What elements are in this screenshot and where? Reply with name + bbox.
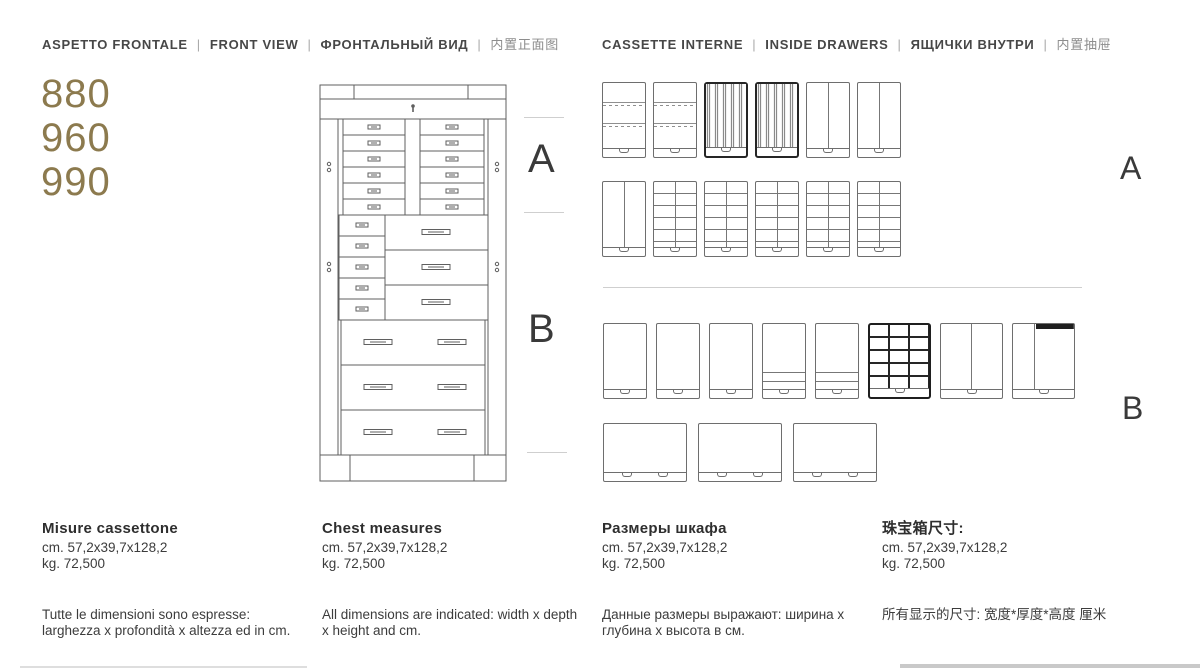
drawer-insert-watch-rolls xyxy=(755,82,799,158)
insert-well xyxy=(794,424,876,472)
insert-front-strip xyxy=(657,389,699,398)
insert-well xyxy=(705,182,747,247)
insert-well xyxy=(858,182,900,247)
section-a-bottom-rule xyxy=(524,212,564,213)
measure-kg: kg. 72,500 xyxy=(882,556,1154,572)
insert-handle-notch xyxy=(673,390,683,394)
inside-drawers-header-it: CASSETTE INTERNE xyxy=(602,37,743,52)
chest-top-lid xyxy=(320,85,506,119)
chest-outline xyxy=(320,85,506,481)
insert-handle-notch xyxy=(874,248,884,252)
drawer-insert-plain-wide xyxy=(698,423,782,482)
insert-row-b2 xyxy=(603,423,877,482)
insert-front-strip xyxy=(941,389,1002,398)
insert-handle-notch xyxy=(832,390,842,394)
insert-handle-notch xyxy=(717,473,727,477)
insert-well xyxy=(699,424,781,472)
keyhole-icon xyxy=(411,104,415,112)
insert-well xyxy=(1013,324,1074,389)
insert-handle-notch xyxy=(670,149,680,153)
insert-row-b1 xyxy=(603,323,1075,399)
section-b-bottom-rule xyxy=(527,452,567,453)
drawer-insert-plain-wide xyxy=(603,423,687,482)
section-a-label-left: A xyxy=(528,137,555,182)
section-b-lower-drawers xyxy=(341,320,485,455)
insert-row-a2 xyxy=(602,181,901,257)
section-b-label-right: B xyxy=(1122,390,1143,427)
measure-cm: cm. 57,2x39,7x128,2 xyxy=(602,540,874,556)
drawer-insert-divider-vertical xyxy=(806,82,850,158)
measure-note: Данные размеры выражают: ширина x глубин… xyxy=(602,607,892,639)
drawer-insert-divider-vertical xyxy=(602,181,646,257)
model-990: 990 xyxy=(41,160,111,204)
measure-note: 所有显示的尺寸: 宽度*厚度*高度 厘米 xyxy=(882,607,1172,623)
chest-plinth xyxy=(320,455,506,481)
drawer-insert-grid-2x6 xyxy=(857,181,901,257)
insert-handle-notch xyxy=(823,248,833,252)
front-view-header-it: ASPETTO FRONTALE xyxy=(42,37,188,52)
insert-front-strip xyxy=(603,247,645,256)
measures-column-italian: Misure cassettone cm. 57,2x39,7x128,2 kg… xyxy=(42,521,314,572)
hinge-icon xyxy=(495,262,498,271)
insert-well xyxy=(710,324,752,389)
insert-well xyxy=(603,182,645,247)
measure-kg: kg. 72,500 xyxy=(42,556,314,572)
insert-front-strip xyxy=(710,389,752,398)
measure-cm: cm. 57,2x39,7x128,2 xyxy=(882,540,1154,556)
insert-well xyxy=(657,324,699,389)
insert-front-strip xyxy=(794,472,876,481)
insert-front-strip xyxy=(654,148,696,157)
insert-handle-notch xyxy=(726,390,736,394)
drawer-insert-ring-slots xyxy=(602,82,646,158)
insert-well xyxy=(763,324,805,389)
inside-drawers-header-ru: ЯЩИЧКИ ВНУТРИ xyxy=(911,37,1035,52)
insert-handle-notch xyxy=(772,248,782,252)
insert-front-strip xyxy=(756,247,798,256)
insert-handle-notch xyxy=(895,389,905,393)
inside-drawers-header: CASSETTE INTERNE|INSIDE DRAWERS|ЯЩИЧКИ В… xyxy=(602,34,1111,53)
insert-front-strip xyxy=(654,247,696,256)
insert-handle-notch xyxy=(658,473,668,477)
front-view-drawing xyxy=(318,83,508,483)
measures-column-english: Chest measures cm. 57,2x39,7x128,2 kg. 7… xyxy=(322,521,594,572)
insert-front-strip xyxy=(757,147,797,156)
insert-handle-notch xyxy=(721,248,731,252)
insert-front-strip xyxy=(699,472,781,481)
measures-column-chinese: 珠宝箱尺寸: cm. 57,2x39,7x128,2 kg. 72,500 所有… xyxy=(882,521,1154,572)
insert-handle-notch xyxy=(812,473,822,477)
insert-front-strip xyxy=(816,389,858,398)
front-view-header-ru: ФРОНТАЛЬНЫЙ ВИД xyxy=(321,37,469,52)
inside-drawers-header-en: INSIDE DRAWERS xyxy=(765,37,888,52)
insert-well xyxy=(870,325,929,388)
section-b-upper-drawers xyxy=(339,215,488,320)
insert-handle-notch xyxy=(1039,390,1049,394)
insert-front-strip xyxy=(858,247,900,256)
inside-drawers-header-zh: 内置抽屉 xyxy=(1057,37,1112,52)
insert-well xyxy=(654,83,696,148)
insert-well xyxy=(706,84,746,147)
bottom-rule-right xyxy=(900,664,1200,668)
header-separator: | xyxy=(898,37,902,52)
hinge-icon xyxy=(327,262,330,271)
front-view-header-zh: 内置正面图 xyxy=(490,37,559,52)
insert-handle-notch xyxy=(619,248,629,252)
hinge-icon xyxy=(495,162,498,171)
catalog-page: ASPETTO FRONTALE|FRONT VIEW|ФРОНТАЛЬНЫЙ … xyxy=(0,0,1200,669)
insert-front-strip xyxy=(603,148,645,157)
insert-handle-notch xyxy=(619,149,629,153)
hinge-icon xyxy=(327,162,330,171)
header-separator: | xyxy=(197,37,201,52)
model-880: 880 xyxy=(41,72,111,116)
header-separator: | xyxy=(752,37,756,52)
measure-title: Размеры шкафа xyxy=(602,521,874,537)
measure-title: Misure cassettone xyxy=(42,521,314,537)
measures-column-russian: Размеры шкафа cm. 57,2x39,7x128,2 kg. 72… xyxy=(602,521,874,572)
measure-note: Tutte le dimensioni sono espresse: largh… xyxy=(42,607,332,639)
insert-handle-notch xyxy=(670,248,680,252)
drawer-insert-watch-rolls xyxy=(704,82,748,158)
inside-drawers-separator-rule xyxy=(603,287,1082,288)
bottom-rule-left xyxy=(20,666,307,668)
insert-front-strip xyxy=(705,247,747,256)
drawer-insert-divider-left-top-dark xyxy=(1012,323,1075,399)
header-separator: | xyxy=(307,37,311,52)
insert-well xyxy=(756,182,798,247)
measure-kg: kg. 72,500 xyxy=(602,556,874,572)
measure-cm: cm. 57,2x39,7x128,2 xyxy=(322,540,594,556)
insert-row-a1 xyxy=(602,82,901,158)
section-a-drawers xyxy=(343,119,484,215)
drawer-insert-grid-2x6 xyxy=(806,181,850,257)
drawer-insert-tray-lines xyxy=(815,323,859,399)
drawer-insert-plain-wide xyxy=(793,423,877,482)
front-view-header-en: FRONT VIEW xyxy=(210,37,299,52)
insert-well xyxy=(858,83,900,148)
insert-front-strip xyxy=(604,389,646,398)
section-b-label-left: B xyxy=(528,307,555,352)
drawer-insert-divider-vertical xyxy=(857,82,901,158)
insert-handle-notch xyxy=(620,390,630,394)
drawer-insert-plain xyxy=(603,323,647,399)
insert-handle-notch xyxy=(753,473,763,477)
measure-title: 珠宝箱尺寸: xyxy=(882,521,1154,537)
insert-handle-notch xyxy=(622,473,632,477)
header-separator: | xyxy=(477,37,481,52)
insert-front-strip xyxy=(706,147,746,156)
insert-well xyxy=(807,182,849,247)
insert-front-strip xyxy=(763,389,805,398)
front-view-header: ASPETTO FRONTALE|FRONT VIEW|ФРОНТАЛЬНЫЙ … xyxy=(42,34,559,53)
section-a-top-rule xyxy=(524,117,564,118)
model-960: 960 xyxy=(41,116,111,160)
measure-title: Chest measures xyxy=(322,521,594,537)
insert-handle-notch xyxy=(779,390,789,394)
insert-well xyxy=(816,324,858,389)
section-a-label-right: A xyxy=(1120,150,1141,187)
insert-handle-notch xyxy=(848,473,858,477)
measure-note: All dimensions are indicated: width x de… xyxy=(322,607,612,639)
insert-front-strip xyxy=(1013,389,1074,398)
measure-cm: cm. 57,2x39,7x128,2 xyxy=(42,540,314,556)
insert-front-strip xyxy=(604,472,686,481)
measure-kg: kg. 72,500 xyxy=(322,556,594,572)
insert-front-strip xyxy=(807,247,849,256)
drawer-insert-grid-2x6 xyxy=(755,181,799,257)
insert-front-strip xyxy=(807,148,849,157)
insert-well xyxy=(807,83,849,148)
drawer-insert-plain xyxy=(656,323,700,399)
insert-well xyxy=(757,84,797,147)
insert-well xyxy=(603,83,645,148)
drawer-insert-grid-dark xyxy=(868,323,931,399)
drawer-insert-ring-slots xyxy=(653,82,697,158)
drawer-insert-tray-lines xyxy=(762,323,806,399)
insert-front-strip xyxy=(870,388,929,397)
insert-handle-notch xyxy=(874,149,884,153)
drawer-insert-grid-2x6 xyxy=(653,181,697,257)
insert-handle-notch xyxy=(772,148,782,152)
header-separator: | xyxy=(1043,37,1047,52)
insert-well xyxy=(604,424,686,472)
insert-handle-notch xyxy=(967,390,977,394)
insert-handle-notch xyxy=(823,149,833,153)
insert-well xyxy=(941,324,1002,389)
drawer-insert-divider-vertical-wide xyxy=(940,323,1003,399)
insert-handle-notch xyxy=(721,148,731,152)
drawer-insert-plain xyxy=(709,323,753,399)
drawer-insert-grid-2x6 xyxy=(704,181,748,257)
insert-well xyxy=(654,182,696,247)
model-numbers: 880 960 990 xyxy=(41,72,111,204)
insert-well xyxy=(604,324,646,389)
insert-front-strip xyxy=(858,148,900,157)
